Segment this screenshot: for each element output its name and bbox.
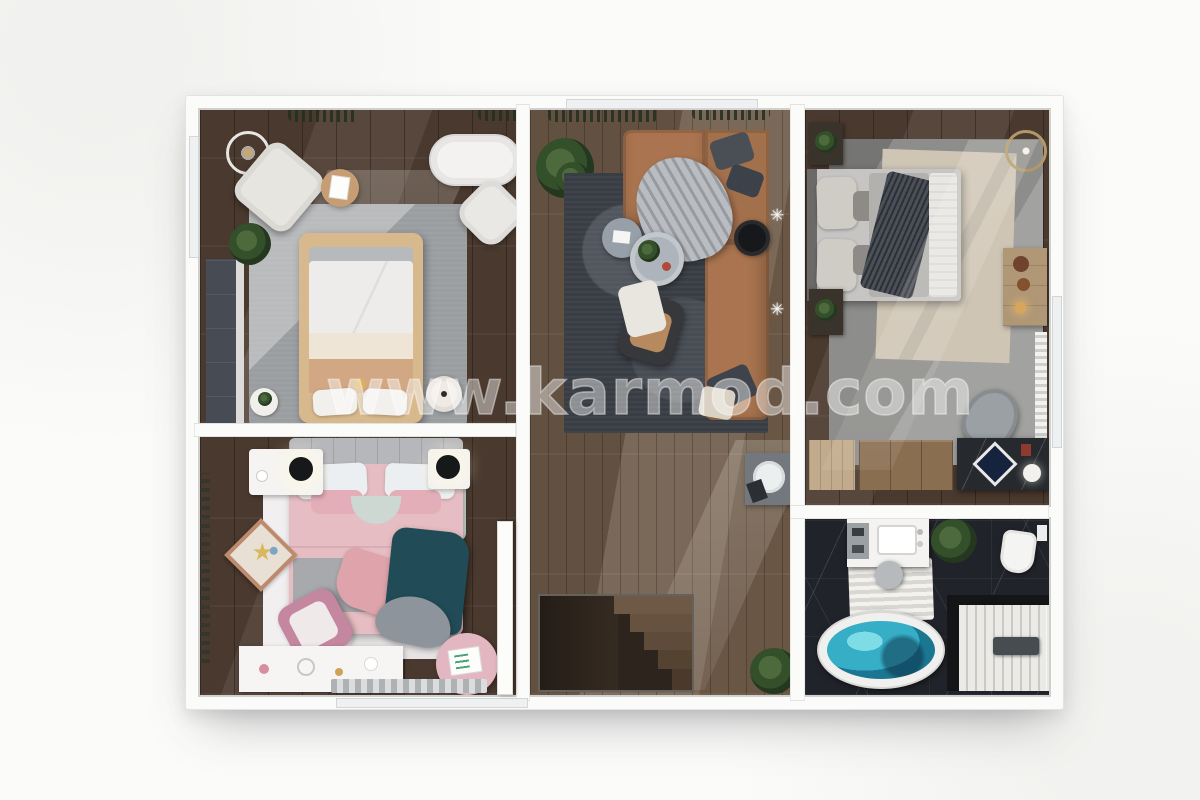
shower-bench xyxy=(993,637,1039,655)
stair-tread xyxy=(672,669,692,690)
bathtub-oval xyxy=(817,611,945,689)
decor-bowl xyxy=(1017,278,1030,291)
glass-panel-edge xyxy=(1046,605,1049,691)
stair-tread xyxy=(658,650,692,669)
stair-tread xyxy=(644,632,692,650)
duvet-white xyxy=(309,261,413,337)
room-bathroom xyxy=(805,519,1049,695)
cosmetic-item xyxy=(297,658,315,676)
laptop xyxy=(972,441,1017,486)
vanity-item xyxy=(852,528,864,536)
nightstand-dark xyxy=(809,123,843,165)
stair-tread xyxy=(630,614,692,632)
stool-white xyxy=(250,388,278,416)
hanging-plant-icon xyxy=(692,110,770,120)
plant-sprig-icon xyxy=(258,392,272,406)
window xyxy=(189,136,199,258)
throw-scallop-mint xyxy=(351,496,401,524)
wall-divider-right xyxy=(790,505,1049,519)
decor-ball-gold xyxy=(354,378,366,390)
hanging-plant-icon xyxy=(478,110,516,121)
fluffy-pouf xyxy=(426,376,462,412)
door-open xyxy=(497,521,513,695)
dresser-wood xyxy=(859,440,953,490)
floor-plan-render: ★ xyxy=(0,0,1200,800)
candle-icon xyxy=(1015,302,1026,313)
book xyxy=(448,647,481,675)
pouf-center-dot xyxy=(441,391,447,397)
desk-marble xyxy=(957,438,1049,490)
freestanding-bathtub xyxy=(429,134,516,186)
desk-lamp-ball xyxy=(1023,464,1041,482)
hanging-plant-icon xyxy=(288,110,358,122)
vanity-cabinet xyxy=(847,523,869,559)
wall-vertical-right xyxy=(790,104,805,701)
window-foliage-icon xyxy=(200,473,210,663)
sink-basin xyxy=(877,525,917,555)
room-bedroom-right xyxy=(805,110,1049,505)
potted-plant-icon xyxy=(750,648,790,694)
wall-flowers-icon: ✳ xyxy=(770,302,784,319)
pillow xyxy=(362,388,407,416)
vanity-item xyxy=(852,545,864,553)
table-plant-icon xyxy=(638,240,660,262)
ceiling-lamp-gold-icon xyxy=(1005,130,1047,172)
potted-plant-icon xyxy=(931,519,977,563)
window xyxy=(566,99,758,109)
book xyxy=(330,176,350,199)
nightstand-left xyxy=(249,449,323,495)
plant-icon xyxy=(815,131,837,153)
cosmetic-item xyxy=(365,658,377,670)
toilet-bowl xyxy=(998,529,1038,575)
building-outline: ★ xyxy=(185,95,1064,710)
flush-panel xyxy=(1037,525,1047,541)
side-table-round xyxy=(321,169,359,207)
shower-frame-side xyxy=(947,595,959,691)
bed-tan xyxy=(299,233,423,423)
desk-mug xyxy=(1021,444,1031,456)
magazine xyxy=(612,230,630,244)
potted-plant-icon xyxy=(229,223,271,265)
floor-vent-slats xyxy=(331,679,487,693)
nightstand-right xyxy=(428,449,470,489)
table-lamp-black xyxy=(289,457,313,481)
book-text-lines xyxy=(454,654,470,670)
pillow xyxy=(312,387,358,416)
pillow xyxy=(816,176,858,229)
blanket-white xyxy=(929,173,957,297)
wardrobe xyxy=(206,259,244,423)
pillow xyxy=(816,238,858,291)
room-living-and-hall: ✳ ✳ xyxy=(530,110,790,695)
hanging-plant-icon xyxy=(548,110,658,122)
decor-red xyxy=(662,262,671,271)
stair-tread xyxy=(614,596,692,614)
plant-icon xyxy=(815,299,837,321)
cosmetic-item xyxy=(335,668,343,676)
bathtub-water xyxy=(827,621,935,679)
room-bedroom-bottom-left: ★ xyxy=(200,437,516,695)
faucet-icon xyxy=(917,529,923,535)
stool-round xyxy=(875,561,903,589)
decor-jar xyxy=(257,471,267,481)
wall-divider-left xyxy=(194,423,516,437)
room-bedroom-top-left xyxy=(200,110,516,423)
table-lamp-black xyxy=(436,455,460,479)
staircase xyxy=(538,594,694,692)
cosmetic-item xyxy=(259,664,269,674)
sofa-pillow-cream xyxy=(698,385,737,420)
coffee-table-large xyxy=(630,232,684,286)
window xyxy=(1052,296,1062,448)
serving-tray-black xyxy=(734,220,770,256)
chair-cushion xyxy=(287,599,341,653)
shower-area xyxy=(947,595,1049,691)
nightstand-dark xyxy=(809,289,843,335)
hall-side-table xyxy=(745,453,790,505)
bathroom-vanity xyxy=(847,519,929,567)
bench-wood xyxy=(1003,248,1047,326)
stairwell-shadow xyxy=(540,596,618,690)
soap-icon xyxy=(917,541,923,547)
wall-vertical-left xyxy=(516,104,530,701)
wall-flowers-icon: ✳ xyxy=(770,208,784,225)
shower-frame-top xyxy=(947,595,1049,605)
bed-gray xyxy=(807,169,961,301)
toilet xyxy=(1001,525,1043,575)
deck-light-wood xyxy=(809,440,855,490)
decor-bowl xyxy=(1013,256,1029,272)
window xyxy=(336,698,528,708)
